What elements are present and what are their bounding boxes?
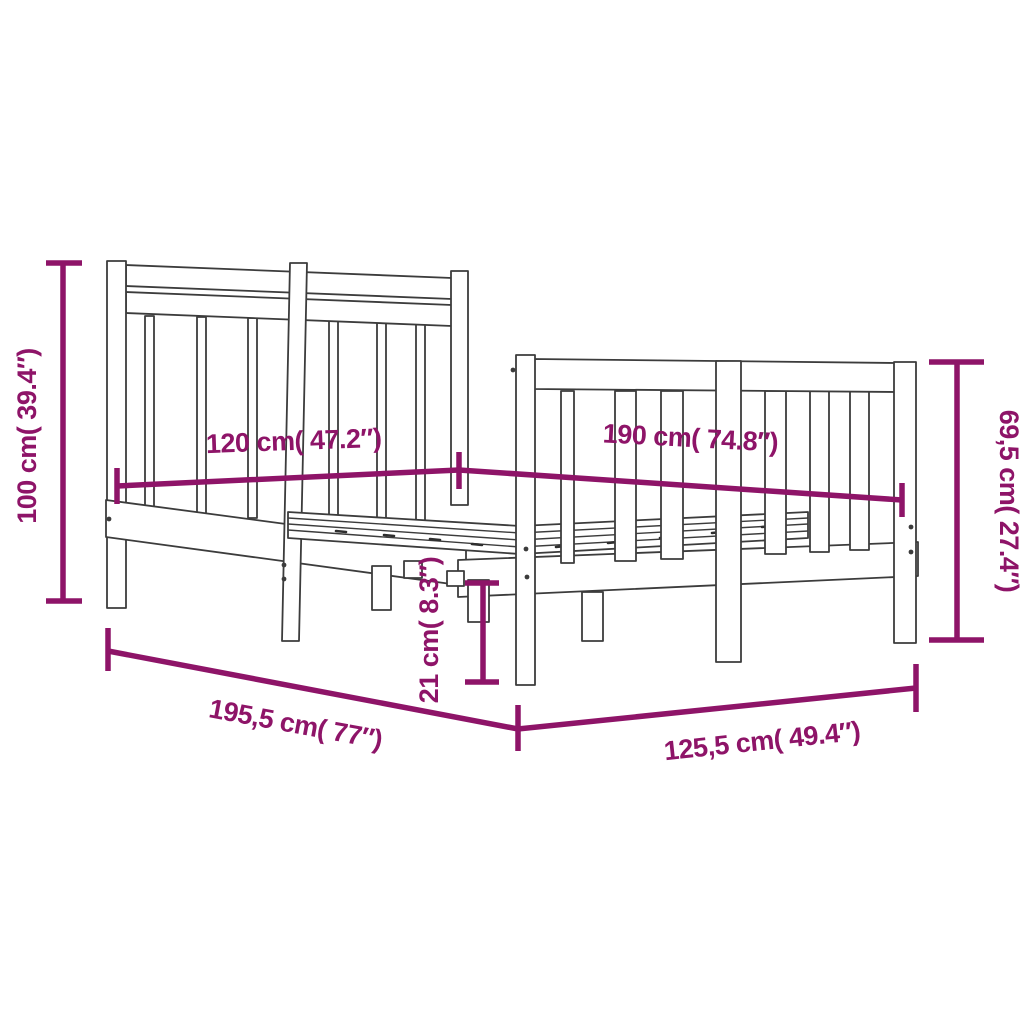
- footboard-left-post: [516, 355, 535, 685]
- footboard-rail: [534, 359, 896, 392]
- dimension-base: 195,5 cm( 77″) 125,5 cm( 49.4″): [108, 628, 916, 766]
- rail-bracket-front: [447, 571, 464, 586]
- dimension-label-height-left: 100 cm( 39.4″): [12, 348, 42, 524]
- footboard-middle-post: [716, 361, 741, 662]
- support-leg-right: [582, 592, 603, 641]
- front-corner-leg: [468, 580, 489, 622]
- headboard-left-post: [107, 261, 126, 608]
- dimension-height-left: 100 cm( 39.4″): [12, 263, 82, 601]
- dimension-label-leg-height: 21 cm( 8.3″): [414, 557, 444, 704]
- dimension-height-right: 69,5 cm( 27.4″): [929, 362, 1024, 640]
- footboard-right-post: [894, 362, 916, 643]
- support-leg-left: [372, 566, 391, 610]
- dimension-label-base-width: 125,5 cm( 49.4″): [662, 716, 861, 766]
- dimension-diagram: 100 cm( 39.4″) 120 cm( 47.2″) 190 cm( 74…: [0, 0, 1024, 1024]
- dimension-label-width: 120 cm( 47.2″): [205, 423, 381, 459]
- bed-frame-diagram-svg: 100 cm( 39.4″) 120 cm( 47.2″) 190 cm( 74…: [0, 0, 1024, 1024]
- dimension-label-height-right: 69,5 cm( 27.4″): [994, 410, 1024, 593]
- dimension-label-base-length: 195,5 cm( 77″): [207, 693, 385, 754]
